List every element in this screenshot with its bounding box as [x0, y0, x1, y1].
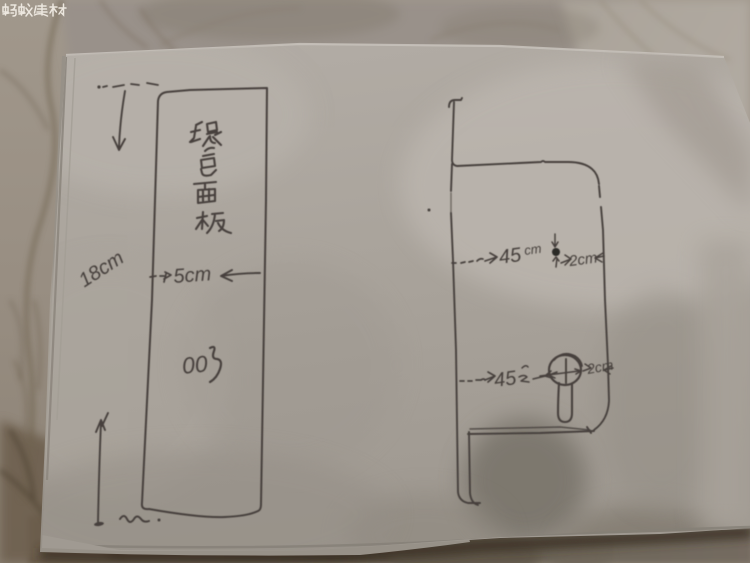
- svg-text:45: 45: [497, 244, 523, 269]
- svg-text:00: 00: [181, 350, 209, 379]
- svg-text:5cm: 5cm: [173, 263, 212, 288]
- svg-text:45: 45: [493, 367, 519, 392]
- svg-text:cm: cm: [523, 241, 542, 258]
